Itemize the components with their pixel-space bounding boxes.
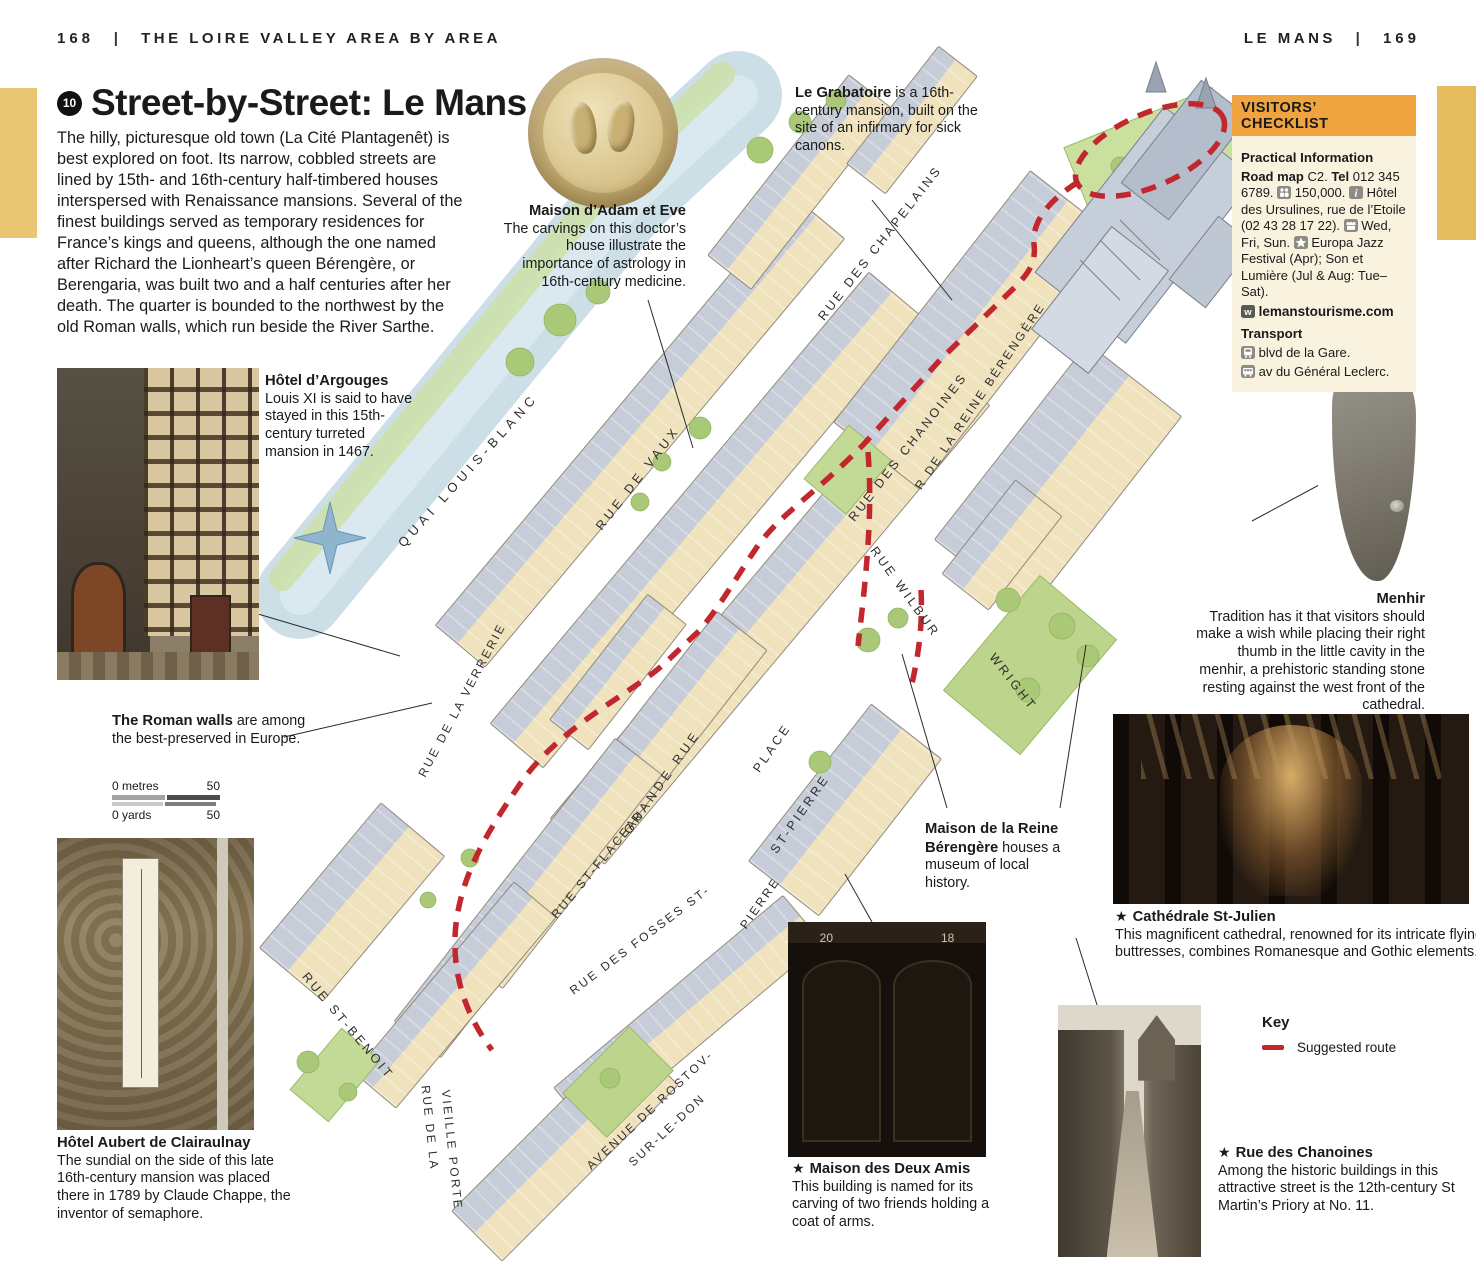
star-icon: ★ (1115, 908, 1128, 924)
page-title: Street-by-Street: Le Mans (91, 82, 527, 124)
arched-door (71, 562, 125, 662)
star-icon: ★ (1218, 1144, 1231, 1160)
chanoines-title: Rue des Chanoines (1236, 1145, 1373, 1161)
hotel-aubert-photo (57, 838, 254, 1130)
running-head-divider: | (114, 30, 122, 47)
key-title: Key (1262, 1014, 1396, 1031)
checklist-header: VISITORS’ CHECKLIST (1232, 95, 1416, 136)
scale-bar: 0 metres 50 0 yards 50 (112, 778, 220, 823)
cathedrale-title: Cathédrale St-Julien (1133, 909, 1276, 925)
menhir-body: Tradition has it that visitors should ma… (1196, 609, 1425, 714)
roman-walls-caption: The Roman walls are among the best-prese… (112, 712, 307, 748)
adam-eve-caption: Maison d’Adam et Eve The carvings on thi… (500, 202, 686, 292)
adam-and-eve-carving-photo (528, 58, 678, 208)
suggested-route-swatch (1262, 1045, 1284, 1050)
running-head-left-title: THE LOIRE VALLEY AREA BY AREA (141, 30, 501, 47)
cathedrale-body: This magnificent cathedral, renowned for… (1115, 927, 1476, 961)
door-lintel (788, 922, 986, 943)
chanoines-caption: ★Rue des Chanoines Among the historic bu… (1218, 1144, 1472, 1216)
page-number-right: 169 (1383, 30, 1420, 47)
argouges-title: Hôtel d’Argouges (265, 373, 388, 389)
checklist-website: lemanstourisme.com (1259, 304, 1394, 319)
map-key: Key Suggested route (1262, 1014, 1396, 1055)
aubert-title: Hôtel Aubert de Clairaulnay (57, 1135, 251, 1151)
carved-figure (605, 99, 637, 154)
running-head-divider-2: | (1356, 30, 1364, 47)
title-row: 10 Street-by-Street: Le Mans (57, 82, 527, 124)
visitors-checklist: VISITORS’ CHECKLIST Practical Informatio… (1232, 95, 1416, 392)
train-station-icon (1241, 346, 1255, 359)
running-head-right: LE MANS | 169 (1244, 30, 1420, 47)
festival-icon (1294, 236, 1308, 249)
chanoines-body: Among the historic buildings in this att… (1218, 1163, 1455, 1214)
grabatoire-caption: Le Grabatoire is a 16th-century mansion,… (795, 84, 991, 156)
running-head-right-title: LE MANS (1244, 30, 1336, 47)
bus-icon (1241, 365, 1255, 378)
train-stop-line: blvd de la Gare. (1241, 345, 1407, 362)
section-tab-left (0, 88, 37, 238)
scale-metres-label: 0 metres (112, 779, 159, 793)
map-block (451, 1034, 679, 1262)
grabatoire-title: Le Grabatoire (795, 85, 891, 101)
suggested-route-label: Suggested route (1297, 1040, 1396, 1055)
intro-paragraph: The hilly, picturesque old town (La Cité… (57, 128, 465, 338)
area-number-badge: 10 (57, 91, 82, 116)
section-tab-right (1437, 86, 1476, 240)
rue-des-chanoines-photo (1058, 1005, 1201, 1257)
page-number-left: 168 (57, 30, 94, 47)
hotel-argouges-photo (57, 368, 259, 680)
tourist-info-icon: i (1349, 186, 1363, 199)
deux-amis-door-photo: 20 18 (788, 922, 986, 1157)
scale-yards-value: 50 (207, 808, 220, 822)
cathedral-interior-photo (1113, 714, 1469, 904)
scale-yards-label: 0 yards (112, 808, 151, 822)
carved-figure (567, 100, 600, 155)
cathedrale-caption: ★Cathédrale St-Julien This magnificent c… (1115, 908, 1476, 962)
deux-amis-body: This building is named for its carving o… (792, 1179, 989, 1230)
practical-information-heading: Practical Information (1241, 150, 1407, 167)
sundial (122, 858, 159, 1088)
menhir-title: Menhir (1376, 591, 1425, 607)
door-number-right: 18 (941, 931, 954, 945)
checklist-practical-text: Road map C2. Tel 012 345 6789. 150,000. … (1241, 169, 1407, 301)
guidebook-page: 168 | THE LOIRE VALLEY AREA BY AREA LE M… (0, 0, 1476, 1281)
running-head-left: 168 | THE LOIRE VALLEY AREA BY AREA (57, 30, 501, 47)
deux-amis-caption: ★Maison des Deux Amis This building is n… (792, 1160, 1010, 1232)
scale-bar-metres (112, 795, 220, 800)
svg-text:w: w (1243, 307, 1252, 318)
menhir-cavity (1390, 500, 1404, 512)
transport-heading: Transport (1241, 326, 1407, 343)
aubert-caption: Hôtel Aubert de Clairaulnay The sundial … (57, 1134, 305, 1224)
argouges-caption: Hôtel d’Argouges Louis XI is said to hav… (265, 372, 423, 462)
street-tower (1138, 1015, 1175, 1081)
reine-berengere-caption: Maison de la Reine Bérengère houses a mu… (925, 820, 1065, 893)
map-block (259, 802, 445, 1002)
star-icon: ★ (792, 1160, 805, 1176)
cathedral-vault (1141, 714, 1440, 779)
svg-text:i: i (1354, 188, 1358, 200)
population-icon (1277, 186, 1291, 199)
door-panel (802, 960, 881, 1143)
checklist-website-line: w lemanstourisme.com (1241, 303, 1407, 321)
market-icon (1344, 219, 1358, 232)
door-panel (893, 960, 972, 1143)
adam-eve-title: Maison d’Adam et Eve (529, 203, 686, 219)
deux-amis-title: Maison des Deux Amis (810, 1161, 971, 1177)
drainpipe (217, 838, 229, 1130)
map-block (748, 703, 942, 916)
door-number-left: 20 (820, 931, 833, 945)
cobbled-courtyard (57, 652, 259, 680)
scale-metres-value: 50 (207, 779, 220, 793)
scale-bar-yards (112, 802, 216, 806)
aubert-body: The sundial on the side of this late 16t… (57, 1153, 291, 1222)
bus-stop-line: av du Général Leclerc. (1241, 364, 1407, 381)
website-icon: w (1241, 305, 1255, 318)
roman-walls-title: The Roman walls (112, 713, 233, 729)
adam-eve-body: The carvings on this doctor’s house illu… (504, 221, 686, 290)
argouges-body: Louis XI is said to have stayed in this … (265, 391, 412, 460)
menhir-caption: Menhir Tradition has it that visitors sh… (1193, 590, 1425, 715)
